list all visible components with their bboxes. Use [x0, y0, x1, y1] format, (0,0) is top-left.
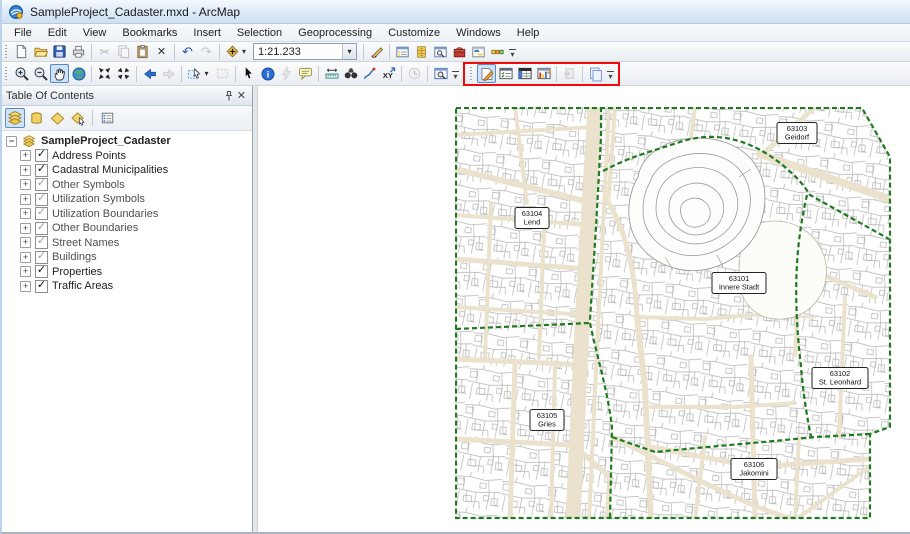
- collapse-icon[interactable]: −: [6, 136, 17, 147]
- layer-label: Buildings: [52, 251, 97, 263]
- highlight-rectangle: ▾: [463, 62, 620, 86]
- layer-checkbox[interactable]: ✓: [35, 149, 48, 162]
- toolbar-grip[interactable]: [469, 66, 474, 82]
- search-icon: [433, 45, 448, 59]
- go-to-xy-icon: XY: [381, 66, 397, 81]
- cut-button[interactable]: ✂: [95, 42, 114, 61]
- label-st-leonhard: 63102St. Leonhard: [812, 368, 868, 389]
- delete-x-icon: ✕: [157, 45, 166, 58]
- layout-window-icon: [536, 66, 552, 81]
- toc-layer-address-points[interactable]: + ✓ Address Points: [20, 149, 252, 164]
- map-canvas[interactable]: 63103Geidorf 63104Lend 63101Innere Stadt…: [455, 107, 892, 520]
- edit-document-button[interactable]: [477, 64, 496, 83]
- zoom-in-icon: [14, 66, 30, 82]
- clear-selection-icon: [215, 66, 230, 81]
- paste-special-button[interactable]: [560, 64, 579, 83]
- toolbar-grip[interactable]: [4, 44, 9, 60]
- label-lend: 63104Lend: [515, 208, 549, 229]
- paste-special-icon: [562, 66, 577, 81]
- toc-layer-other-symbols[interactable]: + ✓ Other Symbols: [20, 178, 252, 193]
- fixed-zoom-out-button[interactable]: [114, 64, 133, 83]
- modelbuilder-icon: [490, 45, 505, 59]
- drawing-order-icon: [7, 110, 23, 126]
- python-icon: [471, 45, 486, 59]
- edit-document-icon: [479, 66, 495, 82]
- toolbar-grip[interactable]: [4, 66, 9, 82]
- table-of-contents-window-button[interactable]: [393, 42, 412, 61]
- toc-layer-cadastral-municipalities[interactable]: + ✓ Cadastral Municipalities: [20, 163, 252, 178]
- save-button[interactable]: [50, 42, 69, 61]
- time-slider-button[interactable]: [405, 64, 424, 83]
- toc-title: Table Of Contents: [6, 90, 223, 102]
- label-gries: 63105Gries: [530, 410, 564, 431]
- table-window-button[interactable]: [515, 64, 534, 83]
- layer-label: Address Points: [52, 150, 126, 162]
- layers-icon: [21, 134, 37, 148]
- toolbox-icon: [452, 45, 467, 59]
- layer-checkbox[interactable]: ✓: [35, 251, 48, 264]
- toolbar-options-button[interactable]: ▾: [450, 68, 461, 79]
- layer-checkbox[interactable]: ✓: [35, 222, 48, 235]
- pin-icon[interactable]: [223, 90, 235, 102]
- editor-pencil-icon: [369, 44, 385, 59]
- toolbar-options-button[interactable]: ▾: [507, 46, 518, 57]
- svg-text:63105Gries: 63105Gries: [537, 411, 558, 429]
- html-popup-button[interactable]: [296, 64, 315, 83]
- open-folder-icon: [33, 44, 49, 59]
- popup-bubble-icon: [298, 66, 313, 81]
- toc-options-button[interactable]: [97, 108, 117, 128]
- layer-label: Utilization Symbols: [52, 193, 145, 205]
- go-to-xy-button[interactable]: XY: [379, 64, 398, 83]
- redo-icon: ↷: [201, 44, 212, 60]
- zoom-in-button[interactable]: [12, 64, 31, 83]
- menu-view[interactable]: View: [75, 27, 115, 39]
- menu-selection[interactable]: Selection: [229, 27, 290, 39]
- layer-label: Traffic Areas: [52, 280, 113, 292]
- menu-customize[interactable]: Customize: [380, 27, 448, 39]
- standard-toolbar: ✂ ✕ ↶ ↷ ▾ 1:21.233 ▾ ▾: [2, 42, 910, 62]
- layer-checkbox[interactable]: ✓: [35, 236, 48, 249]
- arcmap-logo: [8, 4, 24, 20]
- expand-icon[interactable]: +: [20, 252, 31, 263]
- measure-ruler-icon: [324, 66, 340, 81]
- clock-icon: [407, 66, 422, 81]
- identify-button[interactable]: i: [258, 64, 277, 83]
- toc-layer-traffic-areas[interactable]: + ✓ Traffic Areas: [20, 279, 252, 294]
- fixed-zoom-in-button[interactable]: [95, 64, 114, 83]
- paste-icon: [135, 44, 150, 59]
- chevron-down-icon[interactable]: ▾: [342, 44, 356, 59]
- chevron-down-icon: ▾: [240, 47, 249, 56]
- menu-insert[interactable]: Insert: [185, 27, 229, 39]
- catalog-icon: [414, 45, 429, 59]
- layer-label: Properties: [52, 266, 102, 278]
- copy-pages-button[interactable]: [586, 64, 605, 83]
- label-jakomini: 63106Jakomini: [731, 459, 777, 480]
- list-by-drawing-order-button[interactable]: [5, 108, 25, 128]
- menu-help[interactable]: Help: [509, 27, 548, 39]
- fixed-zoom-out-icon: [116, 66, 131, 81]
- toc-layer-utilization-symbols[interactable]: + ✓ Utilization Symbols: [20, 192, 252, 207]
- expand-icon[interactable]: +: [20, 281, 31, 292]
- list-by-selection-button[interactable]: [68, 108, 88, 128]
- list-by-source-button[interactable]: [26, 108, 46, 128]
- toc-root-label: SampleProject_Cadaster: [41, 135, 171, 147]
- layer-checkbox[interactable]: ✓: [35, 280, 48, 293]
- title-bar: SampleProject_Cadaster.mxd - ArcMap: [2, 0, 910, 24]
- lightning-icon: [279, 66, 294, 81]
- back-arrow-icon: [142, 66, 158, 82]
- layer-label: Street Names: [52, 237, 119, 249]
- map-base: [455, 107, 892, 520]
- open-button[interactable]: [31, 42, 50, 61]
- add-data-icon: [225, 44, 240, 59]
- find-route-button[interactable]: [360, 64, 379, 83]
- toc-layer-utilization-boundaries[interactable]: + ✓ Utilization Boundaries: [20, 207, 252, 222]
- label-geidorf: 63103Geidorf: [777, 123, 817, 144]
- expand-icon[interactable]: +: [20, 150, 31, 161]
- attributes-window-icon: [498, 66, 514, 81]
- identify-icon: i: [260, 66, 276, 82]
- source-cylinder-icon: [29, 111, 44, 126]
- route-icon: [362, 66, 377, 81]
- print-button[interactable]: [69, 42, 88, 61]
- print-icon: [71, 44, 86, 59]
- viewer-window-icon: [433, 66, 449, 81]
- window-title: SampleProject_Cadaster.mxd - ArcMap: [30, 5, 240, 19]
- toolbar-options-button[interactable]: ▾: [605, 68, 616, 79]
- label-innere-stadt: 63101Innere Stadt: [712, 273, 766, 294]
- table-window-icon: [517, 66, 533, 81]
- menu-windows[interactable]: Windows: [448, 27, 509, 39]
- map-scale-value: 1:21.233: [254, 46, 342, 58]
- map-view[interactable]: 63103Geidorf 63104Lend 63101Innere Stadt…: [258, 86, 910, 532]
- svg-text:i: i: [266, 69, 269, 79]
- measure-button[interactable]: [322, 64, 341, 83]
- expand-icon[interactable]: +: [20, 208, 31, 219]
- layer-label: Utilization Boundaries: [52, 208, 158, 220]
- svg-text:63103Geidorf: 63103Geidorf: [785, 124, 810, 142]
- menu-file[interactable]: File: [6, 27, 40, 39]
- layer-label: Other Symbols: [52, 179, 125, 191]
- pan-button[interactable]: [50, 64, 69, 83]
- toc-layer-buildings[interactable]: + ✓ Buildings: [20, 250, 252, 265]
- toc-tree: − SampleProject_Cadaster + ✓ Address Poi…: [2, 131, 252, 532]
- new-document-icon: [14, 44, 29, 59]
- toc-header: Table Of Contents ✕: [2, 86, 252, 106]
- cursor-arrow-icon: [241, 66, 256, 81]
- layer-checkbox[interactable]: ✓: [35, 265, 48, 278]
- menu-edit[interactable]: Edit: [40, 27, 75, 39]
- hyperlink-button[interactable]: [277, 64, 296, 83]
- redo-button[interactable]: ↷: [197, 42, 216, 61]
- menu-bar: File Edit View Bookmarks Insert Selectio…: [2, 24, 910, 42]
- toc-layer-properties[interactable]: + ✓ Properties: [20, 265, 252, 280]
- paste-button[interactable]: [133, 42, 152, 61]
- layer-label: Cadastral Municipalities: [52, 164, 168, 176]
- copy-icon: [116, 44, 131, 59]
- find-button[interactable]: [341, 64, 360, 83]
- toc-layer-street-names[interactable]: + ✓ Street Names: [20, 236, 252, 251]
- expand-icon[interactable]: +: [20, 237, 31, 248]
- fixed-zoom-in-icon: [97, 66, 112, 81]
- svg-text:XY: XY: [382, 71, 392, 80]
- scissors-icon: ✂: [99, 45, 109, 59]
- copy-button[interactable]: [114, 42, 133, 61]
- expand-icon[interactable]: +: [20, 179, 31, 190]
- selection-diamond-icon: [71, 111, 86, 126]
- pan-hand-icon: [52, 66, 68, 82]
- map-scale-combo[interactable]: 1:21.233 ▾: [253, 43, 357, 60]
- undo-icon: ↶: [182, 44, 193, 60]
- clear-selection-button[interactable]: [213, 64, 232, 83]
- svg-text:63104Lend: 63104Lend: [522, 209, 543, 227]
- zoom-out-icon: [33, 66, 49, 82]
- delete-button[interactable]: ✕: [152, 42, 171, 61]
- select-features-icon: [187, 66, 202, 81]
- go-forward-extent-button[interactable]: [159, 64, 178, 83]
- new-document-button[interactable]: [12, 42, 31, 61]
- toc-layer-other-boundaries[interactable]: + ✓ Other Boundaries: [20, 221, 252, 236]
- list-by-visibility-button[interactable]: [47, 108, 67, 128]
- chevron-down-icon: ▾: [202, 69, 211, 78]
- add-data-button[interactable]: ▾: [223, 42, 250, 61]
- modelbuilder-button[interactable]: [488, 42, 507, 61]
- binoculars-icon: [343, 66, 359, 81]
- arctoolbox-button[interactable]: [450, 42, 469, 61]
- full-extent-button[interactable]: [69, 64, 88, 83]
- layer-label: Other Boundaries: [52, 222, 138, 234]
- search-window-button[interactable]: [431, 42, 450, 61]
- visibility-diamond-icon: [50, 111, 65, 126]
- table-of-contents-panel: Table Of Contents ✕ − SampleProject_Cada…: [2, 86, 253, 532]
- python-window-button[interactable]: [469, 42, 488, 61]
- copy-pages-icon: [588, 66, 604, 82]
- globe-icon: [71, 66, 87, 82]
- toc-root-row[interactable]: − SampleProject_Cadaster: [6, 134, 252, 149]
- catalog-window-button[interactable]: [412, 42, 431, 61]
- layer-checkbox[interactable]: ✓: [35, 207, 48, 220]
- save-icon: [52, 44, 67, 59]
- undo-button[interactable]: ↶: [178, 42, 197, 61]
- editor-sketch-button[interactable]: [367, 42, 386, 61]
- layout-window-button[interactable]: [534, 64, 553, 83]
- zoom-out-button[interactable]: [31, 64, 50, 83]
- select-elements-button[interactable]: [239, 64, 258, 83]
- forward-arrow-icon: [161, 66, 177, 82]
- expand-icon[interactable]: +: [20, 165, 31, 176]
- layer-checkbox[interactable]: ✓: [35, 178, 48, 191]
- layer-checkbox[interactable]: ✓: [35, 164, 48, 177]
- toc-window-icon: [395, 45, 410, 59]
- expand-icon[interactable]: +: [20, 266, 31, 277]
- attributes-window-button[interactable]: [496, 64, 515, 83]
- expand-icon[interactable]: +: [20, 223, 31, 234]
- options-list-icon: [100, 111, 115, 125]
- go-back-extent-button[interactable]: [140, 64, 159, 83]
- toc-toolbar: [2, 106, 252, 131]
- menu-geoprocessing[interactable]: Geoprocessing: [290, 27, 380, 39]
- expand-icon[interactable]: +: [20, 194, 31, 205]
- tools-toolbar: ▾ i XY ▾ ▾: [2, 62, 910, 86]
- viewer-window-button[interactable]: [431, 64, 450, 83]
- menu-bookmarks[interactable]: Bookmarks: [114, 27, 185, 39]
- select-features-button[interactable]: ▾: [185, 64, 213, 83]
- close-icon[interactable]: ✕: [235, 89, 248, 102]
- layer-checkbox[interactable]: ✓: [35, 193, 48, 206]
